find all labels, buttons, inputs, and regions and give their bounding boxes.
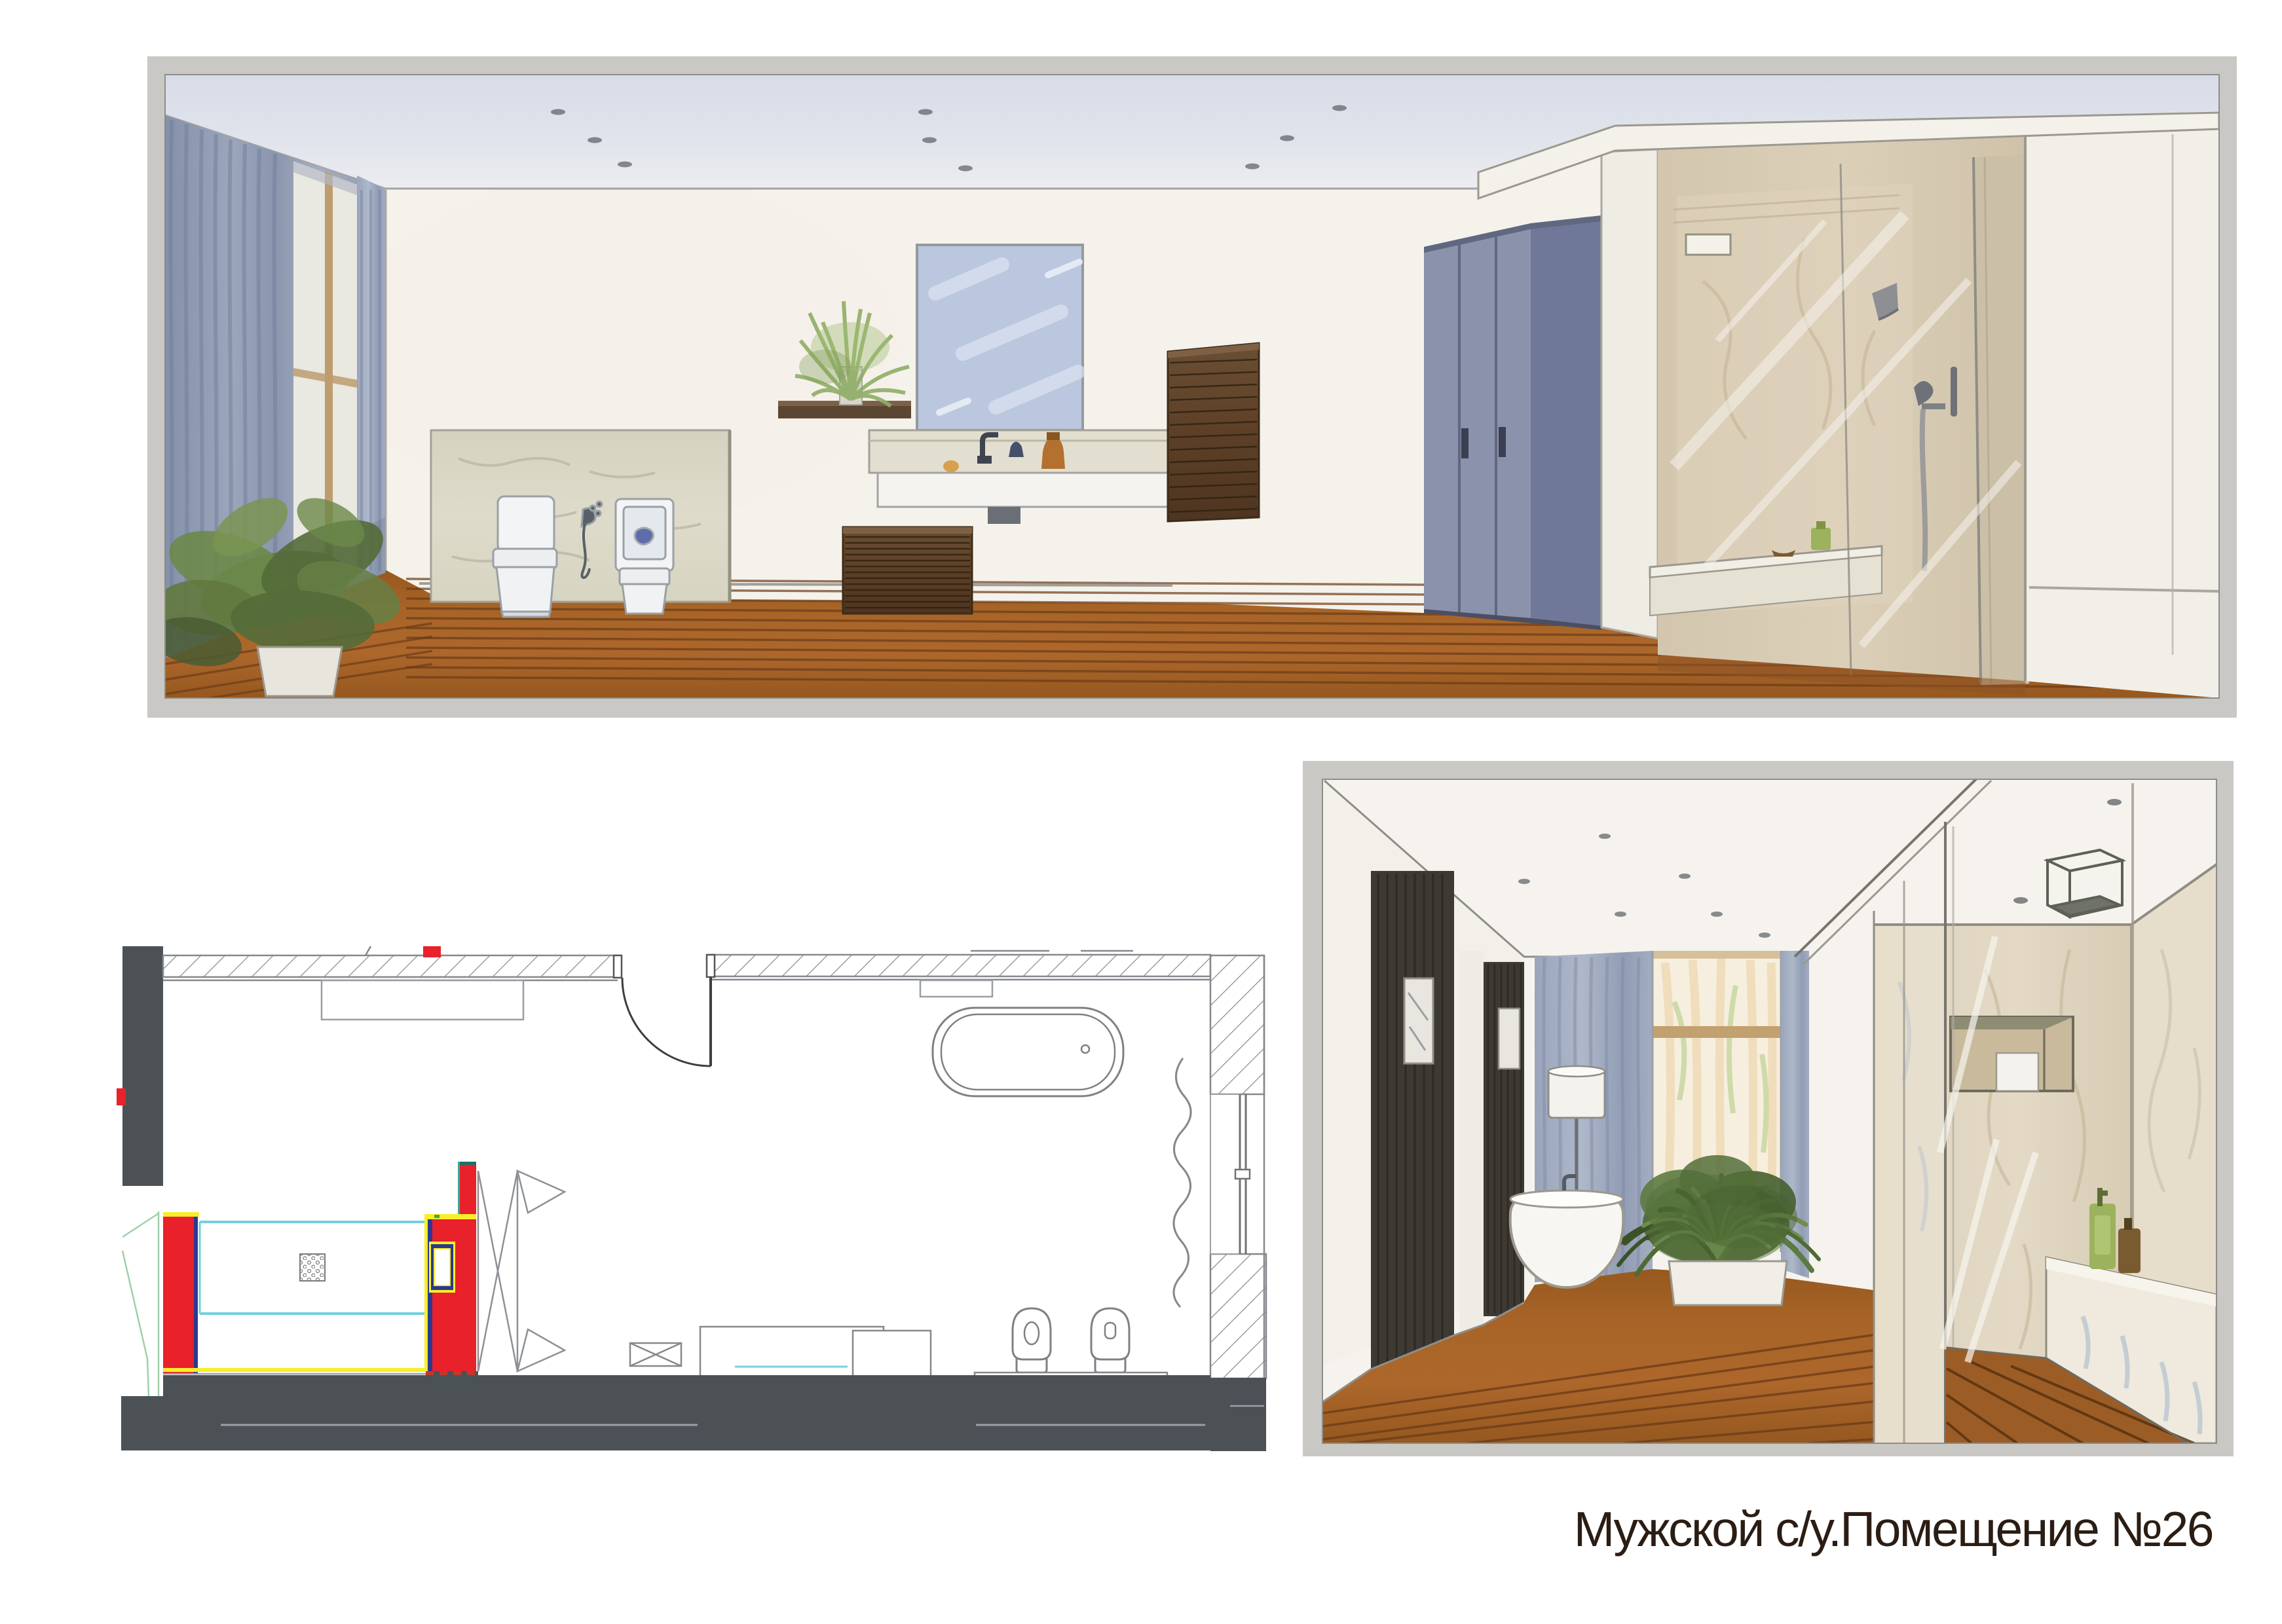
svg-text:Мужской с/у.Помещение №26: Мужской с/у.Помещение №26 (1574, 1502, 2213, 1557)
